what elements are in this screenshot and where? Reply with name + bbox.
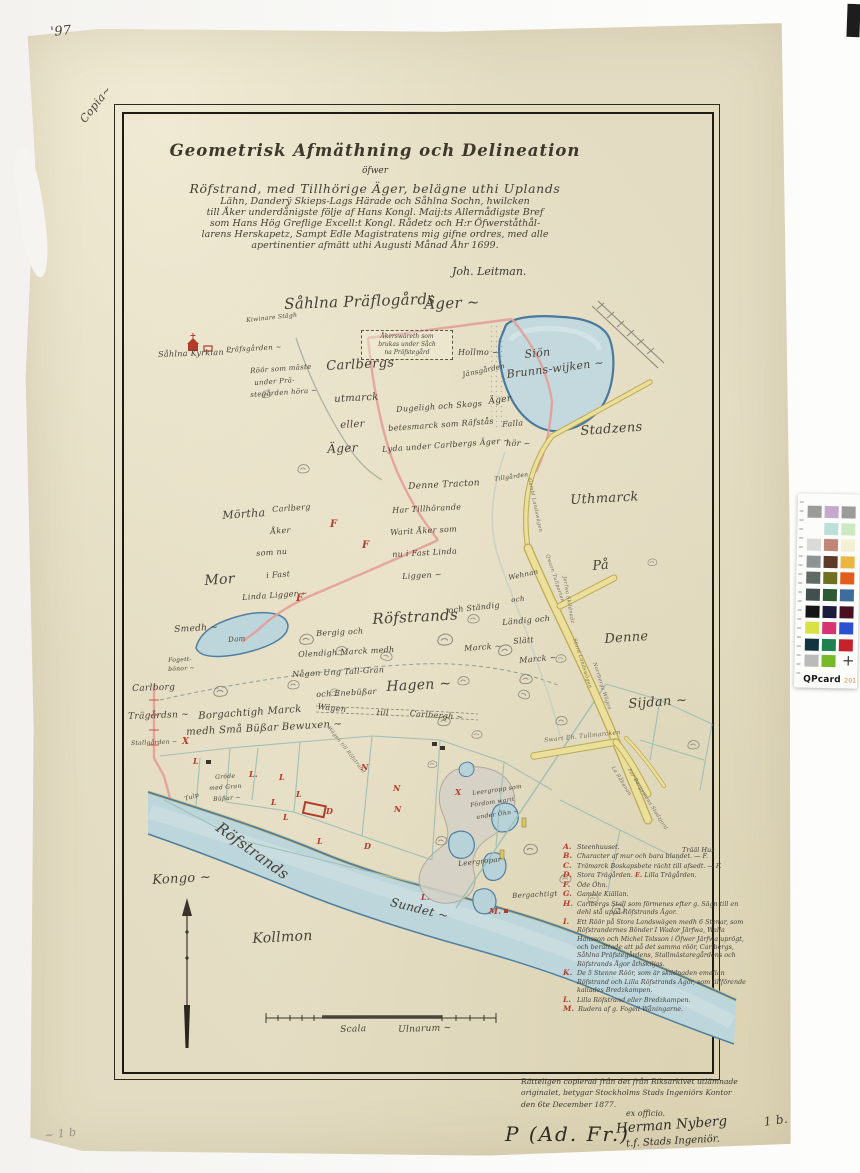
color-swatch <box>805 638 819 650</box>
legend-item: F.Öde Öhn. <box>563 881 751 889</box>
scale-label: Scala <box>340 1025 367 1035</box>
legend-item: G.Gamble Kiällan. <box>563 890 751 898</box>
legend-side-note: Trääl Hus <box>682 846 715 854</box>
corner-number: '97 <box>50 24 72 39</box>
map-label: Kongo ~ <box>152 871 211 887</box>
legend-text: Öde Öhn. <box>577 881 751 889</box>
certification-line: originalet, betygar Stockholms Stads Ing… <box>521 1087 756 1098</box>
ruler-ticks <box>796 501 804 673</box>
color-swatch <box>839 606 853 618</box>
certification-text: Rätteligen copierad från det från Riksar… <box>521 1076 756 1110</box>
map-subtitle: öfwer <box>140 166 610 176</box>
color-swatch <box>841 523 855 535</box>
map-label: Denne <box>604 630 649 646</box>
title-body-text: Röfstrand, med Tillhörige Äger, belägne … <box>140 181 610 251</box>
archive-annotation: P (Ad. Fr.) <box>505 1122 630 1146</box>
legend-text: Carlbergs Stall som förmenes efter g. Sä… <box>577 900 751 917</box>
map-label: Åker <box>270 527 291 536</box>
legend-text: Steenhuuset. <box>577 843 751 851</box>
map-label: Fogett- <box>168 657 192 664</box>
legend-item: D.Stora Trägården. E. Lilla Trägården. <box>563 871 751 879</box>
legend-item: I.Ett Röör på Stora Landswägen medh 6 St… <box>563 918 751 969</box>
red-marker: L. <box>249 770 258 778</box>
color-swatch <box>824 539 838 551</box>
map-label: Dam <box>228 635 246 643</box>
ex-officio-note: ex officio. <box>626 1109 665 1118</box>
title-body-line: som Hans Hög Greflige Excell:t Kongl. Rå… <box>140 218 610 229</box>
map-label: Mor <box>204 572 235 588</box>
legend-item: B.Character af mur och bara blandet. — F… <box>563 852 751 860</box>
color-swatch <box>804 655 818 667</box>
crosshair-mark: + <box>842 653 855 668</box>
title-body-line: apertinentier afmätt uthi Augusti Månad … <box>140 240 610 251</box>
map-label: hör ~ <box>506 440 531 448</box>
red-marker: F <box>362 541 369 551</box>
map-label: På <box>592 559 610 573</box>
map-label: Äger ~ <box>424 295 480 312</box>
qpcard-brand: QPcard <box>803 675 841 686</box>
red-marker: F <box>330 520 337 530</box>
folio-number: 1 b. <box>763 1113 789 1128</box>
red-marker: L <box>271 798 277 806</box>
qpcard-model: 201 <box>844 677 856 684</box>
legend-letter: H. <box>563 900 573 917</box>
map-label: i Fast <box>266 570 290 580</box>
color-swatch <box>823 589 837 601</box>
color-swatch <box>840 589 854 601</box>
legend-letter: K. <box>563 969 573 994</box>
color-swatch <box>806 572 820 584</box>
map-label: Carlborg <box>132 683 175 693</box>
color-swatch <box>840 573 854 585</box>
red-marker: L <box>296 790 302 798</box>
color-swatch <box>805 622 819 634</box>
label-carlbergs: Carlbergs <box>326 356 395 373</box>
red-marker: N <box>361 763 369 771</box>
legend-letter: G. <box>563 890 573 898</box>
color-swatch <box>842 506 856 518</box>
legend-text: Ett Röör på Stora Landswägen medh 6 Sten… <box>577 918 751 969</box>
color-swatch <box>839 622 853 634</box>
red-marker: L. <box>421 893 430 901</box>
legend-text: Rudera af g. Fogell Wåningarne. <box>578 1005 751 1013</box>
photo-corner-mark <box>846 4 860 37</box>
legend-text: Stora Trägården. E. Lilla Trägården. <box>577 871 751 879</box>
red-marker: D <box>364 842 371 850</box>
color-swatch <box>806 589 820 601</box>
label-lake: Siön <box>524 346 551 360</box>
legend-letter: E. <box>633 871 645 879</box>
legend-item: K.De 5 Stenne Röör, som är skildnaden em… <box>563 969 751 994</box>
map-label: Kollmon <box>252 929 313 946</box>
color-swatch <box>806 555 820 567</box>
map-label: till <box>376 709 389 718</box>
legend-item: H.Carlbergs Stall som förmenes efter g. … <box>563 900 751 917</box>
legend-letter: D. <box>563 871 573 879</box>
color-swatch <box>822 622 836 634</box>
red-marker: L <box>317 837 323 845</box>
color-swatch <box>822 639 836 651</box>
scale-label: Ulnarum ~ <box>398 1024 452 1035</box>
legend-letter: M. <box>563 1005 574 1013</box>
map-label: Sijdan ~ <box>628 694 688 711</box>
note-box-line: brukas under Såch <box>364 341 450 349</box>
red-marker: N <box>394 805 402 813</box>
legend-letter: A. <box>563 843 573 851</box>
color-swatch <box>824 523 838 535</box>
legend-letter: L. <box>563 996 573 1004</box>
legend-text: De 5 Stenne Röör, som är skildnaden emel… <box>577 969 751 994</box>
color-swatch <box>805 605 819 617</box>
certification-line: Rätteligen copierad från det från Riksar… <box>521 1076 756 1087</box>
color-swatch <box>822 605 836 617</box>
scanned-map-photo: Geometrisk Afmäthning och Delineation öf… <box>0 0 860 1173</box>
legend-item: M.Rudera af g. Fogell Wåningarne. <box>563 1005 751 1013</box>
title-block: Geometrisk Afmäthning och Delineation öf… <box>140 141 610 251</box>
legend-text: Gamble Kiällan. <box>577 890 751 898</box>
red-marker: X <box>455 788 462 796</box>
color-swatch <box>839 639 853 651</box>
color-swatch <box>823 556 837 568</box>
red-marker: N <box>393 784 401 792</box>
pencil-note: ~ 1 b <box>44 1127 77 1141</box>
map-label: Hollmo ~ <box>458 349 499 357</box>
map-label: och <box>511 596 525 604</box>
legend-letter: I. <box>563 918 573 969</box>
qpcard-logo: QPcard 201 <box>803 675 856 686</box>
map-legend: A.Steenhuuset.B.Character af mur och bar… <box>563 843 751 1015</box>
legend-text: Trämarck Boskapsbete rächt till afsedt. … <box>577 862 751 870</box>
red-marker: L <box>283 813 289 821</box>
label-rofstrands: Röfstrands <box>372 608 458 627</box>
map-label: Uthmarck <box>570 490 639 507</box>
title-body-line: Lähn, Danderÿ Skieps-Lags Härade och Såh… <box>140 196 610 207</box>
legend-letter: C. <box>563 862 573 870</box>
legend-text: Lilla Röfstrand eller Bredzkampen. <box>577 996 751 1004</box>
legend-item: L.Lilla Röfstrand eller Bredzkampen. <box>563 996 751 1004</box>
note-box-line: Åkerswäreth som <box>364 333 450 341</box>
title-body-line: till Åker underdånigste följe af Hans Ko… <box>140 207 610 218</box>
color-swatch <box>841 539 855 551</box>
red-marker: F <box>296 594 303 604</box>
color-swatch <box>807 539 821 551</box>
color-calibration-card: + QPcard 201 <box>794 493 860 688</box>
surveyor-signature: Joh. Leitman. <box>452 265 526 278</box>
title-body-line: larens Herskapetz, Sampt Edle Magistrate… <box>140 229 610 240</box>
map-title: Geometrisk Afmäthning och Delineation <box>140 141 610 160</box>
color-swatch <box>825 506 839 518</box>
red-marker: D <box>326 807 333 815</box>
color-swatch <box>821 655 835 667</box>
legend-text: Character af mur och bara blandet. — F. <box>577 852 751 860</box>
map-label: eller <box>340 420 365 431</box>
map-label: Mörtha <box>222 507 266 521</box>
legend-letter: F. <box>563 881 573 889</box>
red-marker: L <box>279 773 285 781</box>
legend-item: C.Trämarck Boskapsbete rächt till afsedt… <box>563 862 751 870</box>
label-hagen: Hagen ~ <box>386 677 452 694</box>
red-marker: L <box>193 757 199 765</box>
red-marker: X <box>182 738 189 747</box>
red-marker: M. <box>489 907 501 915</box>
color-swatch <box>808 506 822 518</box>
color-swatch <box>823 572 837 584</box>
legend-letter: B. <box>563 852 573 860</box>
legend-item: A.Steenhuuset. <box>563 843 751 851</box>
color-swatch <box>840 556 854 568</box>
title-body-line: Röfstrand, med Tillhörige Äger, belägne … <box>140 181 610 196</box>
map-label: Äger <box>327 441 358 455</box>
